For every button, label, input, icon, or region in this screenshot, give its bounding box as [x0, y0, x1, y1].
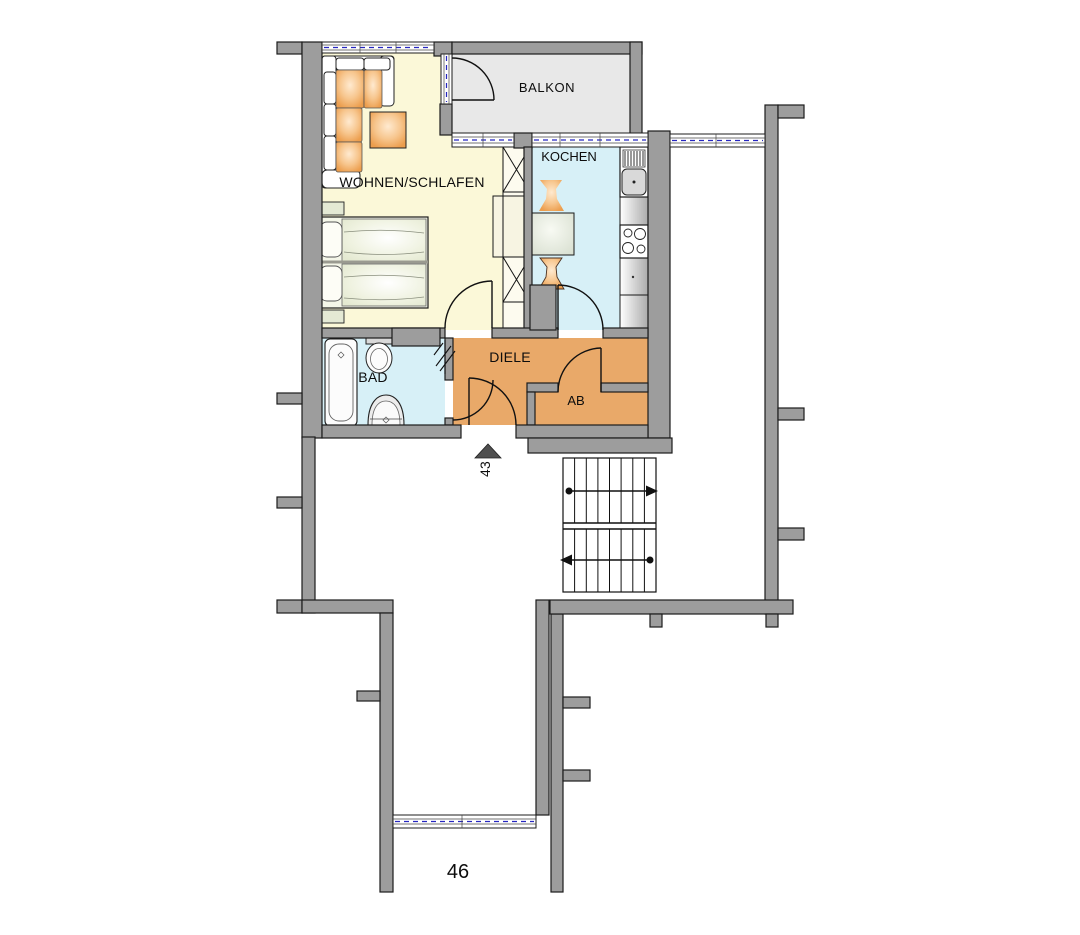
double-bed: [318, 202, 428, 323]
wall-segment: [630, 42, 642, 135]
stove: [620, 225, 648, 258]
window: [393, 815, 536, 828]
entrance-marker: [475, 444, 501, 458]
wall-segment: [563, 770, 590, 781]
wall-segment: [277, 393, 302, 404]
wall-segment: [527, 392, 535, 425]
wall-segment: [765, 105, 778, 614]
wall-segment: [778, 408, 804, 420]
wall-segment: [648, 131, 670, 438]
label-bad: BAD: [358, 369, 387, 385]
wall-segment: [650, 614, 662, 627]
wall-segment: [380, 613, 393, 892]
window: [441, 54, 452, 104]
wall-segment: [766, 614, 778, 627]
wall-segment: [530, 285, 556, 330]
wall-segment: [601, 383, 648, 392]
wall-segment: [277, 497, 302, 508]
label-wohnen-schlafen: WOHNEN/SCHLAFEN: [339, 174, 484, 190]
wall-segment: [778, 105, 804, 118]
wall-segment: [357, 691, 380, 701]
wall-segment: [778, 528, 804, 540]
wall-segment: [514, 133, 532, 148]
window: [670, 134, 765, 147]
kitchen-sink: [620, 147, 648, 197]
wall-segment: [322, 425, 461, 438]
wall-segment: [440, 104, 452, 135]
wall-segment: [445, 418, 453, 425]
bathtub: [325, 339, 357, 426]
wall-segment: [302, 437, 315, 613]
wall-segment: [516, 425, 648, 438]
floorplan-drawing: WOHNEN/SCHLAFEN BALKON KOCHEN BAD DIELE …: [0, 0, 1080, 935]
wall-segment: [527, 383, 558, 392]
pillow: [320, 266, 342, 301]
window: [452, 133, 648, 147]
toilet: [366, 333, 392, 373]
label-ab: AB: [567, 393, 584, 408]
label-balkon: BALKON: [519, 80, 575, 95]
wall-segment: [550, 600, 793, 614]
wall-segment: [536, 600, 549, 815]
wall-segment: [277, 600, 302, 613]
label-apartment-number: 43: [477, 461, 493, 477]
wall-segment: [452, 42, 642, 54]
hall-floor: [453, 338, 648, 425]
wall-segment: [563, 697, 590, 708]
staircase: [560, 458, 658, 592]
label-kochen: KOCHEN: [541, 149, 597, 164]
entrance-arrow-icon: [475, 444, 501, 458]
window: [322, 42, 434, 53]
label-adjacent-unit-number: 46: [447, 861, 469, 883]
wall-segment: [551, 614, 563, 892]
floorplan-page: WOHNEN/SCHLAFEN BALKON KOCHEN BAD DIELE …: [0, 0, 1080, 935]
wall-segment: [392, 328, 440, 346]
pillow: [320, 222, 342, 257]
wall-segment: [528, 438, 672, 453]
label-diele: DIELE: [489, 349, 530, 365]
wall-segment: [277, 42, 302, 54]
wall-segment: [302, 600, 393, 613]
wall-segment: [302, 42, 322, 438]
coffee-table: [370, 112, 406, 148]
kitchen-table: [532, 213, 574, 255]
wall-segment: [603, 328, 648, 338]
